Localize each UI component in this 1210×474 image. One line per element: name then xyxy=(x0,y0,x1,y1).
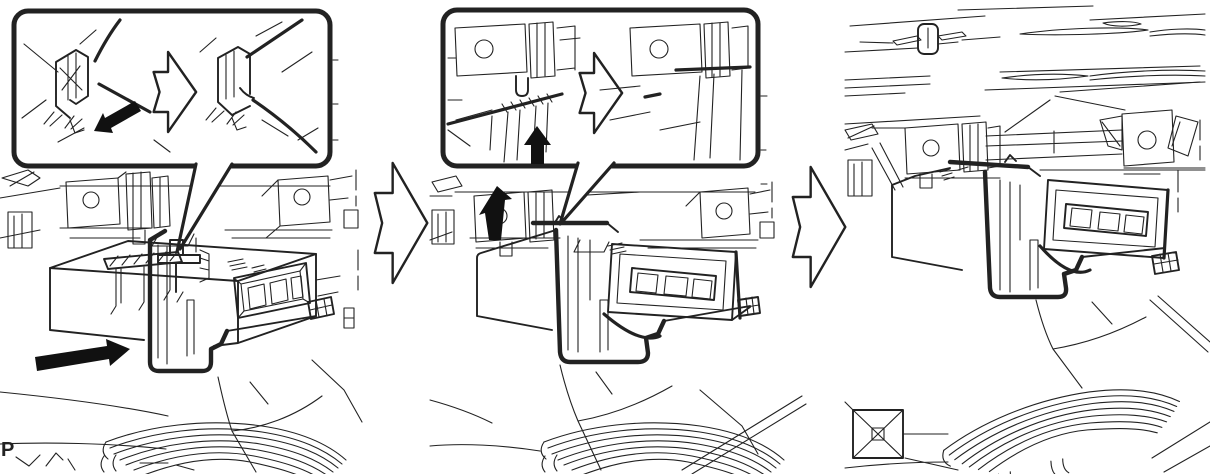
bracket-strip-2 xyxy=(430,176,774,256)
harness-wires xyxy=(845,6,1205,124)
panel-step-2 xyxy=(430,10,806,474)
dash-scenery-2 xyxy=(430,365,806,474)
dash-scenery-1 xyxy=(0,360,362,474)
panel-step-3 xyxy=(845,6,1210,474)
callout-pointer-1 xyxy=(177,162,232,252)
step-connector-2-icon xyxy=(793,167,846,287)
callout-box-1 xyxy=(14,11,338,252)
panel-step-1 xyxy=(0,11,362,474)
harness-clip-icon xyxy=(860,24,966,54)
cross-box-marker xyxy=(853,410,903,458)
corner-label: P xyxy=(1,440,14,460)
black-push-arrow-right-icon xyxy=(35,339,130,371)
bracket-strip-3 xyxy=(845,100,1205,212)
grille-1 xyxy=(103,423,346,474)
step-connector-1-icon xyxy=(375,163,428,283)
black-lift-arrow-up-icon xyxy=(479,186,512,240)
figure-canvas: P xyxy=(0,0,1210,474)
dash-scenery-3 xyxy=(845,296,1210,474)
guide-claw-1 xyxy=(158,240,209,302)
grille-2 xyxy=(541,423,784,474)
line-art xyxy=(0,0,1210,474)
module-step-3 xyxy=(892,155,1179,297)
